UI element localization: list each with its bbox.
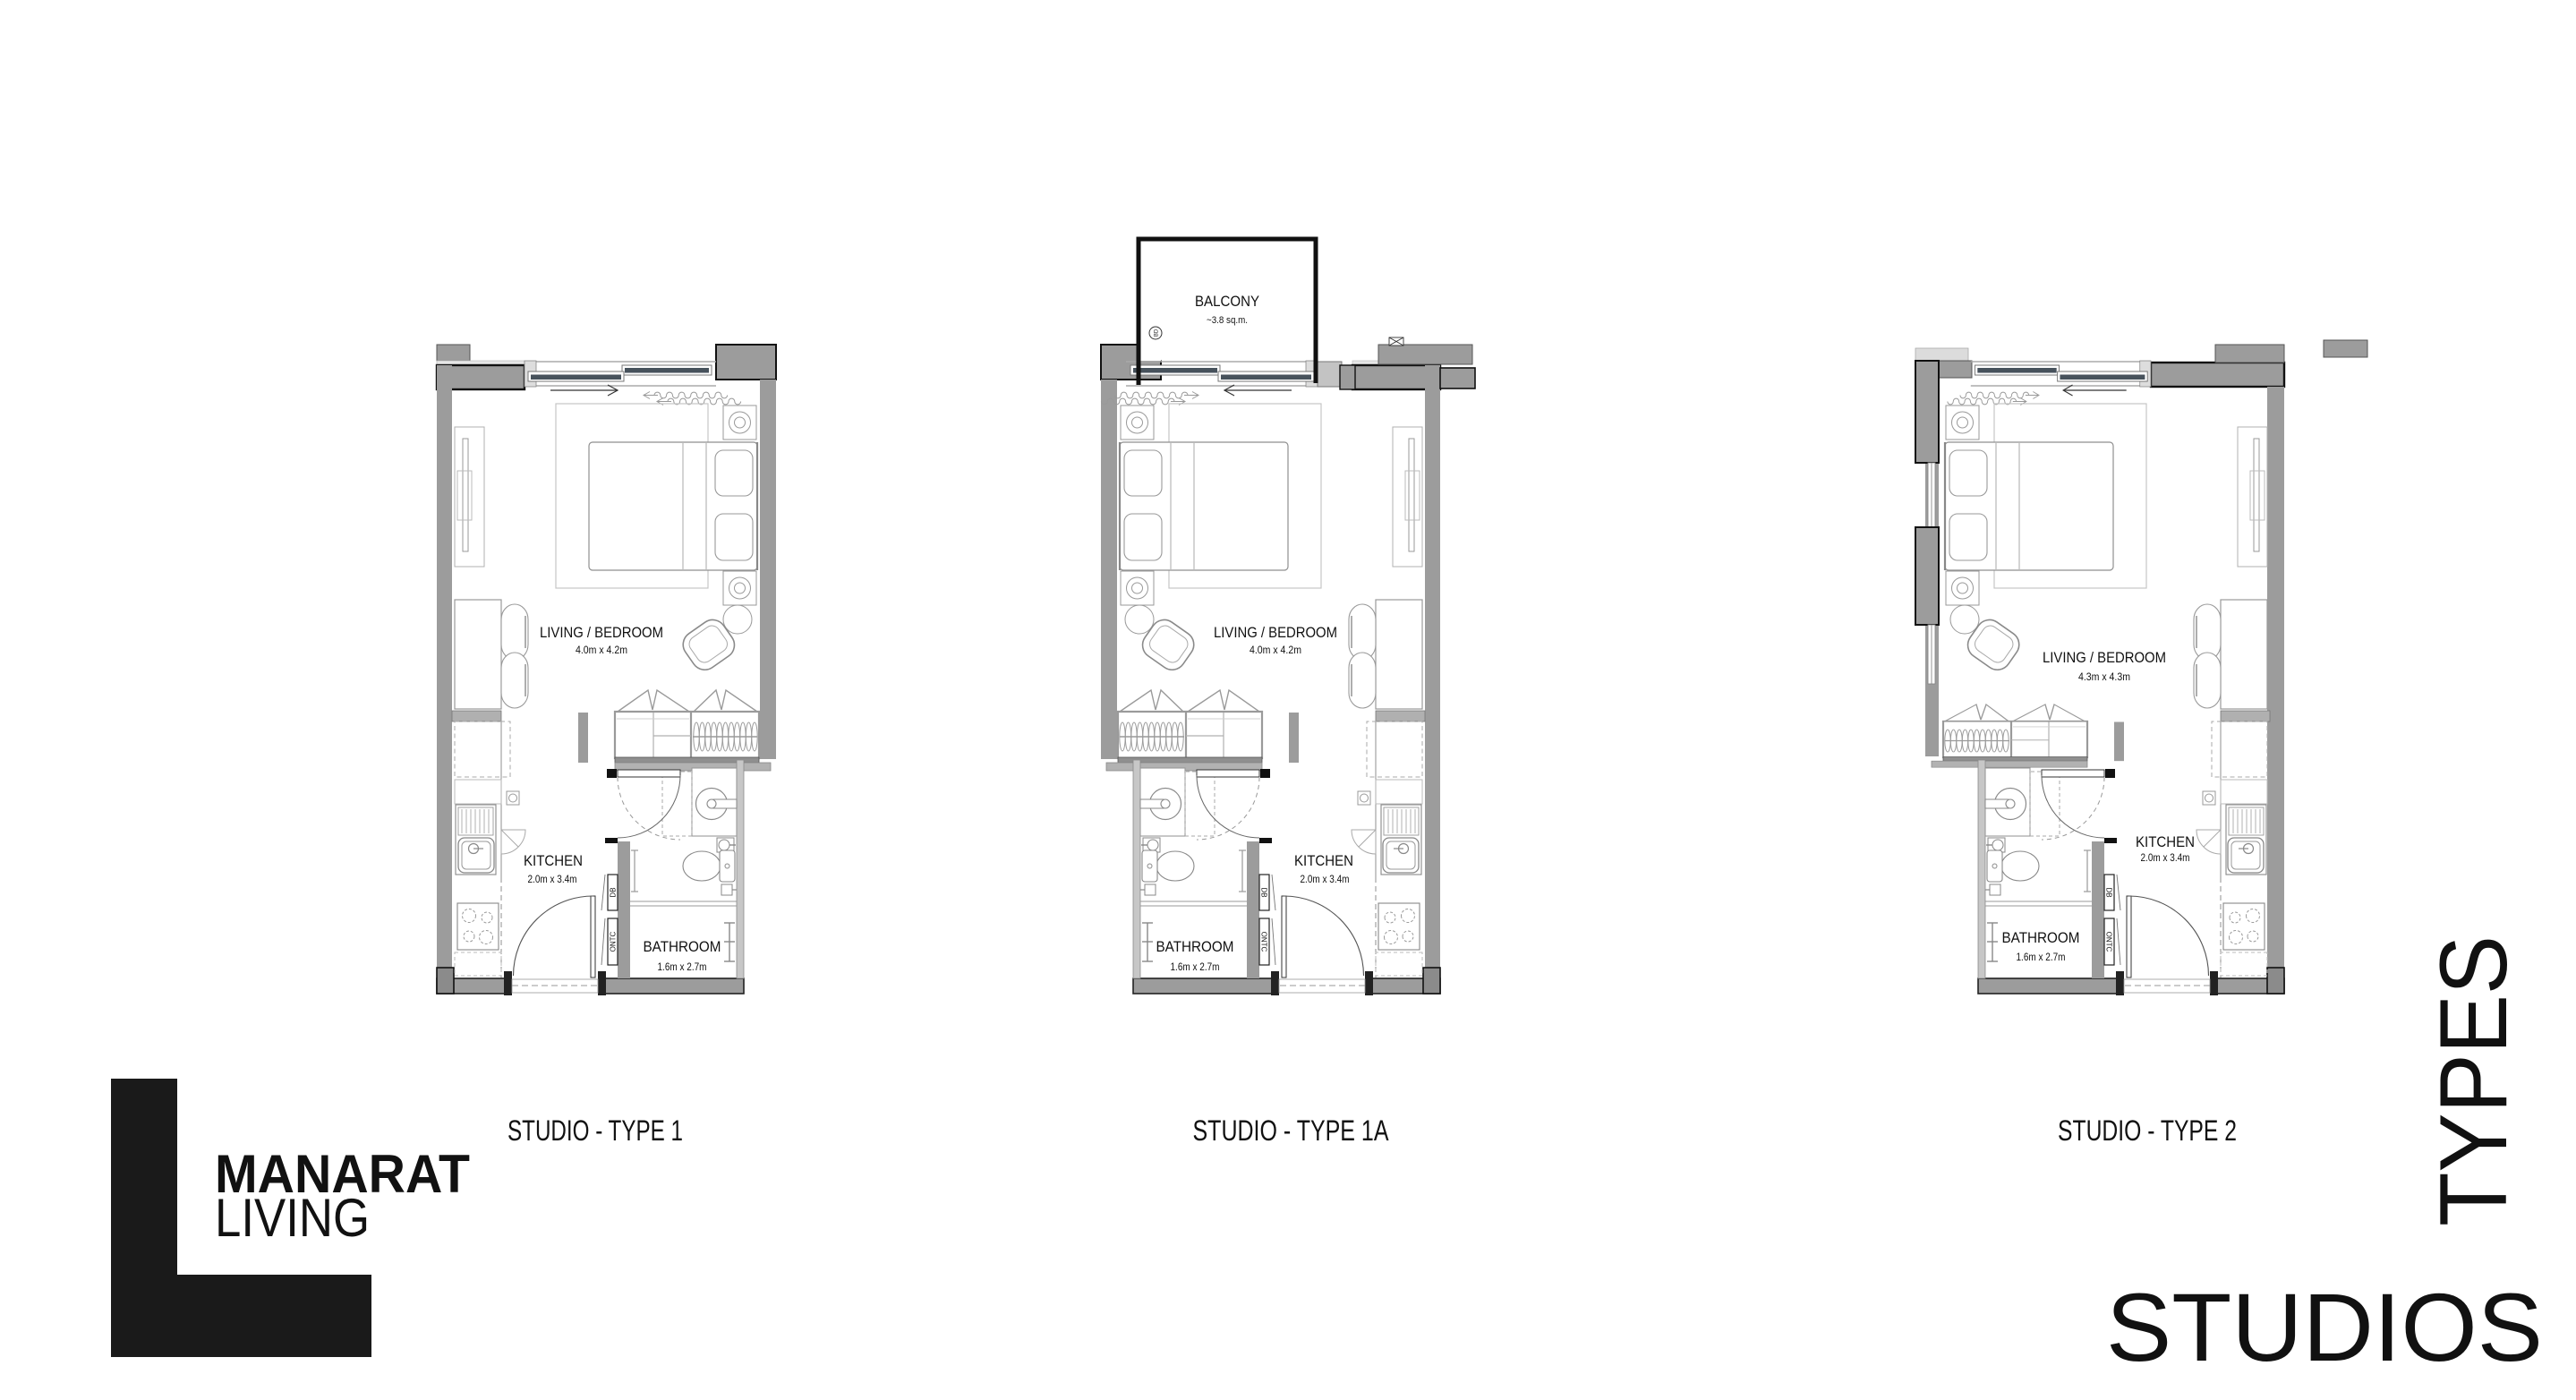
svg-text:LIVING / BEDROOM: LIVING / BEDROOM	[2043, 649, 2166, 666]
svg-text:TYPES: TYPES	[2419, 935, 2527, 1226]
svg-text:KITCHEN: KITCHEN	[524, 852, 583, 869]
svg-text:4.0m x 4.2m: 4.0m x 4.2m	[576, 644, 627, 656]
svg-text:ONTC: ONTC	[610, 931, 618, 952]
svg-text:1.6m x 2.7m: 1.6m x 2.7m	[1171, 960, 1220, 973]
svg-text:STUDIO - TYPE 1: STUDIO - TYPE 1	[508, 1114, 683, 1147]
svg-text:2.0m x 3.4m: 2.0m x 3.4m	[2141, 851, 2190, 864]
svg-text:DB: DB	[2105, 887, 2113, 897]
svg-text:BATHROOM: BATHROOM	[2002, 929, 2080, 946]
svg-text:1.6m x 2.7m: 1.6m x 2.7m	[658, 960, 707, 973]
svg-text:LIVING / BEDROOM: LIVING / BEDROOM	[540, 624, 663, 641]
svg-text:STUDIOS: STUDIOS	[2106, 1273, 2543, 1381]
svg-text:DB: DB	[1260, 887, 1268, 897]
svg-text:4.3m x 4.3m: 4.3m x 4.3m	[2078, 670, 2130, 683]
svg-text:2.0m x 3.4m: 2.0m x 3.4m	[528, 873, 577, 885]
svg-text:LIVING: LIVING	[215, 1188, 370, 1248]
svg-text:~3.8 sq.m.: ~3.8 sq.m.	[1207, 315, 1248, 326]
svg-text:KITCHEN: KITCHEN	[2136, 833, 2195, 850]
svg-text:BD: BD	[1155, 329, 1160, 337]
svg-text:ONTC: ONTC	[2105, 932, 2113, 952]
svg-text:STUDIO - TYPE 2: STUDIO - TYPE 2	[2058, 1114, 2237, 1147]
svg-text:1.6m x 2.7m: 1.6m x 2.7m	[2017, 951, 2066, 963]
svg-text:KITCHEN: KITCHEN	[1294, 852, 1353, 869]
svg-text:BATHROOM: BATHROOM	[1156, 938, 1234, 955]
svg-text:4.0m x 4.2m: 4.0m x 4.2m	[1250, 644, 1301, 656]
svg-text:ONTC: ONTC	[1260, 932, 1268, 952]
svg-text:LIVING / BEDROOM: LIVING / BEDROOM	[1214, 624, 1337, 641]
svg-text:STUDIO - TYPE 1A: STUDIO - TYPE 1A	[1193, 1114, 1390, 1147]
svg-text:2.0m x 3.4m: 2.0m x 3.4m	[1301, 873, 1350, 885]
svg-text:BALCONY: BALCONY	[1195, 294, 1259, 310]
svg-text:DB: DB	[610, 887, 618, 897]
svg-text:BATHROOM: BATHROOM	[644, 938, 721, 955]
